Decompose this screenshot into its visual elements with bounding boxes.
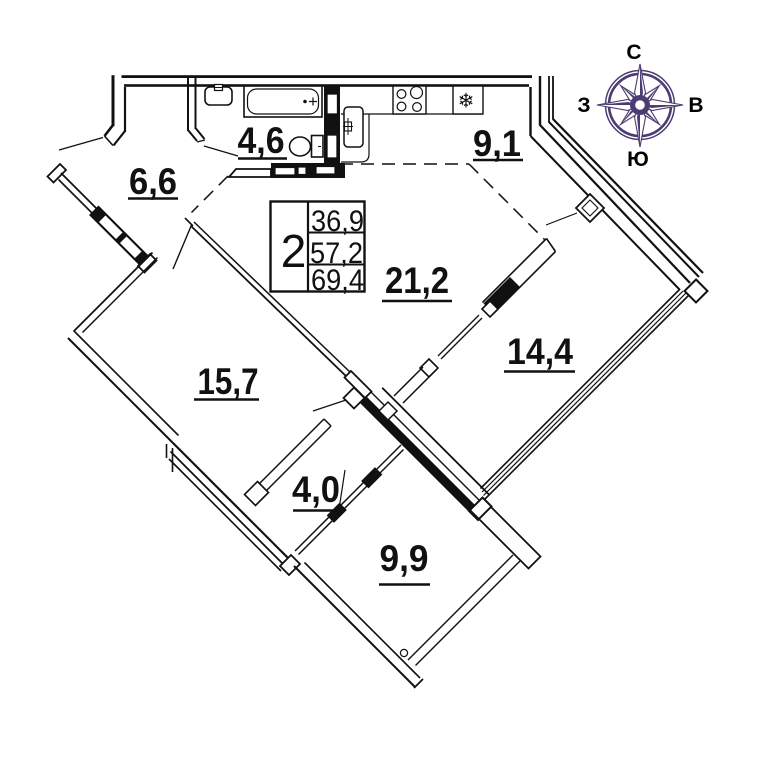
svg-text:9,9: 9,9 [380, 538, 429, 579]
svg-text:З: З [577, 94, 590, 117]
svg-text:6,6: 6,6 [129, 161, 177, 202]
svg-text:69,4: 69,4 [311, 264, 364, 297]
svg-text:Ю: Ю [627, 148, 649, 171]
svg-text:4,0: 4,0 [292, 469, 340, 510]
svg-text:2: 2 [281, 225, 307, 277]
svg-text:4,6: 4,6 [238, 120, 285, 161]
svg-text:14,4: 14,4 [507, 331, 573, 372]
svg-text:9,1: 9,1 [473, 123, 521, 164]
svg-text:❄: ❄ [458, 91, 475, 113]
svg-text:15,7: 15,7 [198, 361, 259, 402]
svg-text:В: В [688, 94, 703, 117]
svg-text:С: С [626, 41, 641, 64]
svg-text:21,2: 21,2 [385, 260, 449, 301]
svg-text:36,9: 36,9 [311, 205, 364, 238]
